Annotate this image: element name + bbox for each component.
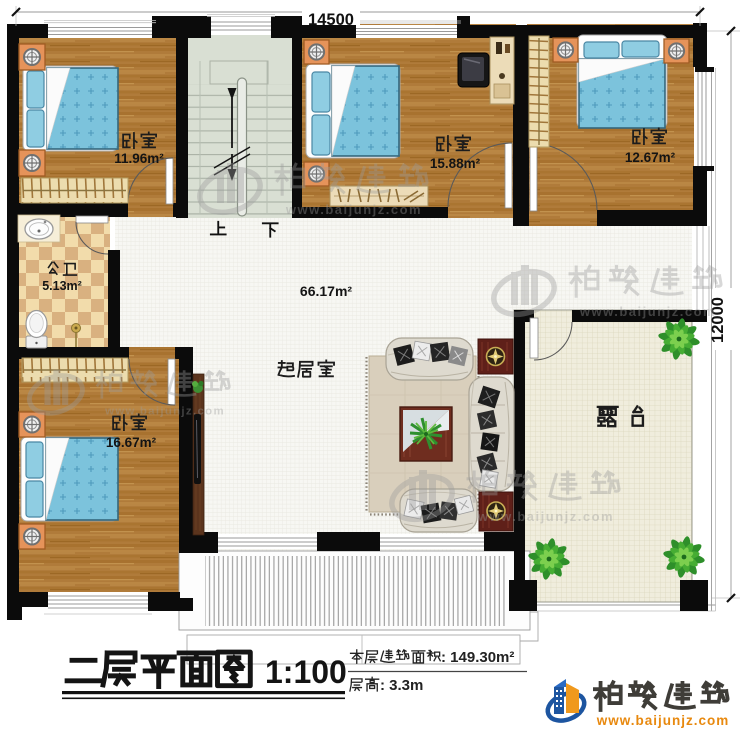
- svg-text:: 3.3m: : 3.3m: [380, 677, 423, 694]
- svg-text:1:100: 1:100: [265, 654, 347, 690]
- svg-text:15.88m²: 15.88m²: [430, 156, 481, 171]
- svg-text:12.67m²: 12.67m²: [625, 150, 676, 165]
- svg-text:66.17m²: 66.17m²: [300, 283, 352, 299]
- svg-text:11.96m²: 11.96m²: [114, 151, 164, 166]
- svg-text:14500: 14500: [308, 11, 354, 29]
- svg-text:: 149.30m²: : 149.30m²: [441, 649, 514, 666]
- svg-text:5.13m²: 5.13m²: [42, 279, 82, 293]
- svg-text:16.67m²: 16.67m²: [106, 435, 157, 450]
- svg-text:www.baijunjz.com: www.baijunjz.com: [596, 713, 730, 728]
